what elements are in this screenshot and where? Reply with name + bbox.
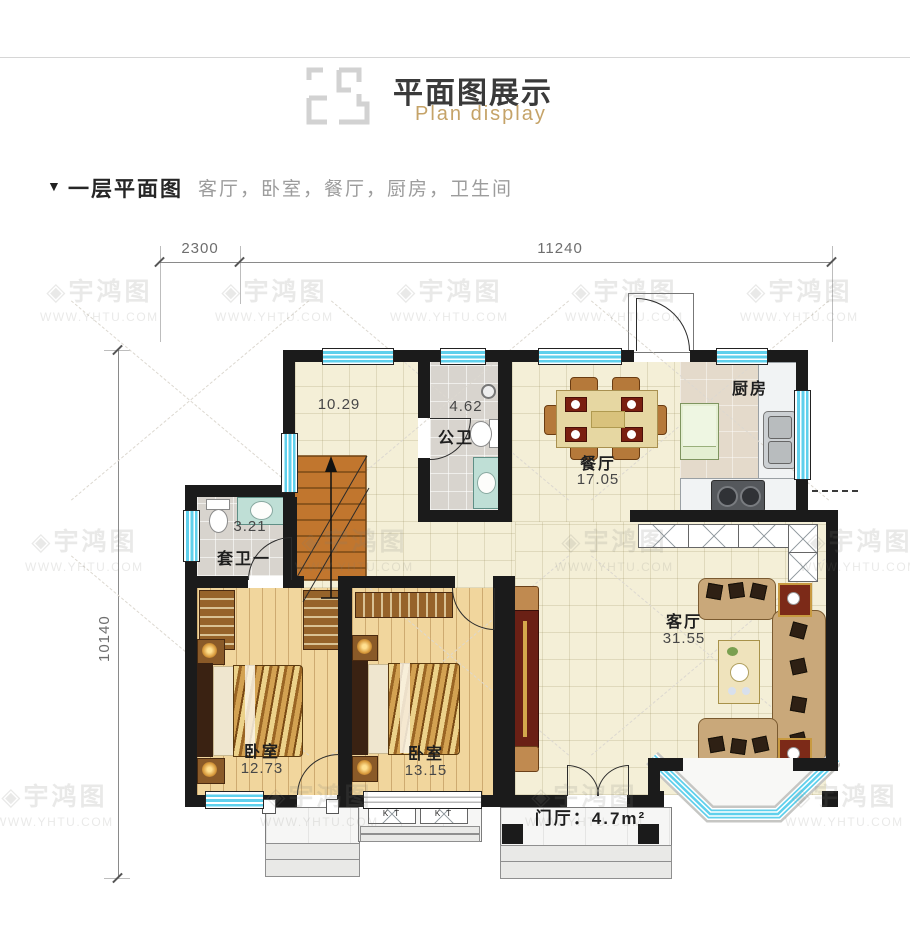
wall (826, 510, 838, 771)
ensuite-label: 套卫一 (204, 545, 284, 569)
ac-platform-edge (360, 826, 480, 834)
speaker (513, 746, 539, 772)
plate (730, 663, 749, 682)
burner (717, 486, 738, 507)
pillow (750, 583, 768, 601)
dimension-top-left: 2300 (160, 240, 240, 257)
nightstand (352, 635, 378, 661)
public-bath-area: 4.62 (438, 398, 494, 415)
wall (655, 758, 683, 771)
porch-post (262, 799, 276, 814)
wall (345, 576, 455, 588)
tv-screen (523, 621, 527, 737)
sink-basin (768, 441, 792, 464)
watermark-url: WWW.YHTU.COM (40, 310, 159, 324)
window (363, 791, 482, 809)
plant (727, 647, 738, 656)
reference-dashes (812, 490, 858, 492)
watermark-logo-icon: ◈ (396, 278, 418, 306)
watermark-brand: ◈宇鸿图 (0, 777, 114, 813)
stove (711, 480, 765, 512)
wall (185, 560, 197, 795)
pillow (790, 658, 808, 676)
side-porch (265, 807, 360, 845)
watermark-logo-icon: ◈ (746, 278, 768, 306)
fridge (680, 403, 719, 460)
watermark: ◈宇鸿图WWW.YHTU.COM (215, 272, 334, 324)
window (440, 348, 486, 365)
porch-step (500, 861, 672, 879)
wall (185, 497, 197, 510)
pillow (728, 582, 745, 599)
speaker (513, 586, 539, 612)
placemat (621, 427, 643, 442)
hall-cabinet (638, 524, 690, 548)
cup (728, 687, 736, 695)
hall-cabinet (688, 524, 740, 548)
wall (185, 576, 248, 588)
hall-cabinet (788, 552, 818, 582)
hall-cabinet (738, 524, 790, 548)
headboard (352, 661, 368, 755)
wall (498, 350, 512, 522)
window (538, 348, 622, 365)
headboard (197, 663, 213, 757)
watermark-url: WWW.YHTU.COM (390, 310, 509, 324)
dimension-line-left (118, 350, 119, 878)
lamp (357, 639, 372, 654)
watermark: ◈宇鸿图WWW.YHTU.COM (40, 272, 159, 324)
bedroom2-area: 13.15 (393, 762, 459, 779)
window (183, 510, 200, 562)
nightstand (197, 758, 225, 784)
wall (493, 576, 515, 795)
kitchen-sink (763, 411, 797, 469)
watermark-brand: ◈宇鸿图 (215, 272, 334, 308)
pillow (789, 621, 807, 639)
watermark-brand: ◈宇鸿图 (740, 272, 859, 308)
bedroom1-area: 12.73 (229, 760, 295, 777)
table-runner (591, 411, 625, 428)
dimension-top-main: 11240 (505, 240, 615, 257)
window (205, 791, 264, 809)
wall (796, 350, 808, 390)
floor-drain (481, 384, 496, 399)
coffee-table (718, 640, 760, 704)
lamp (202, 762, 217, 777)
lamp (202, 643, 217, 658)
watermark-url: WWW.YHTU.COM (0, 815, 114, 829)
ensuite-area: 3.21 (222, 518, 278, 535)
window (322, 348, 394, 365)
watermark-logo-icon: ◈ (46, 278, 68, 306)
wall (337, 795, 363, 807)
floor-plan: 2300 11240 10140 (0, 0, 910, 925)
watermark-logo-icon: ◈ (1, 783, 23, 811)
side-table (778, 583, 812, 617)
stair-hall-area: 10.29 (309, 396, 369, 413)
wall (793, 758, 826, 771)
watermark: ◈宇鸿图WWW.YHTU.COM (0, 777, 114, 829)
wash-basin (477, 472, 496, 494)
wall (283, 350, 295, 435)
watermark: ◈宇鸿图WWW.YHTU.COM (740, 272, 859, 324)
pillow-area (368, 664, 390, 754)
dining-area: 17.05 (566, 471, 630, 488)
window (794, 390, 811, 480)
burner (740, 486, 761, 507)
living-label: 客厅 (654, 608, 714, 632)
fridge-door (683, 406, 716, 447)
dimension-left-side: 10140 (96, 572, 113, 662)
watermark-logo-icon: ◈ (571, 278, 593, 306)
tv-cabinet (513, 610, 539, 748)
watermark-logo-icon: ◈ (31, 528, 53, 556)
window (716, 348, 768, 365)
watermark: ◈宇鸿图WWW.YHTU.COM (390, 272, 509, 324)
placemat (565, 427, 587, 442)
wall (620, 350, 634, 362)
wall (796, 478, 808, 522)
porch-post (326, 799, 339, 814)
pillow (752, 736, 770, 754)
bedroom1-label: 卧室 (232, 738, 292, 762)
foyer-label: 门厅：4.7m² (528, 804, 653, 829)
wall (690, 350, 716, 362)
wall (418, 350, 430, 418)
plan-display-page: 平面图展示 Plan display ▼ 一层平面图 客厅，卧室，餐厅，厨房，卫… (0, 0, 910, 925)
extension-line (240, 246, 241, 304)
hall-cabinet (788, 524, 818, 554)
porch-step (265, 859, 360, 877)
watermark-url: WWW.YHTU.COM (215, 310, 334, 324)
wall (185, 795, 205, 807)
nightstand (352, 756, 378, 782)
wall (290, 576, 304, 588)
watermark-brand: ◈宇鸿图 (40, 272, 159, 308)
floorplan-icon (303, 64, 371, 128)
bay-post (822, 791, 838, 807)
lamp (357, 760, 372, 775)
porch-pillar (502, 824, 523, 844)
pillow (706, 583, 723, 600)
public-bath-label: 公卫 (428, 424, 484, 448)
pillow (708, 736, 725, 753)
bedroom2-label: 卧室 (396, 740, 456, 764)
watermark-url: WWW.YHTU.COM (740, 310, 859, 324)
window (281, 433, 298, 493)
wall (185, 485, 295, 497)
wall (338, 576, 352, 795)
watermark-brand: ◈宇鸿图 (25, 522, 144, 558)
pillow (790, 696, 807, 713)
ac-platform-edge (360, 834, 480, 842)
sink-basin (768, 416, 792, 439)
wall (392, 350, 440, 362)
watermark-brand: ◈宇鸿图 (390, 272, 509, 308)
nightstand (197, 639, 225, 665)
living-area: 31.55 (652, 630, 716, 647)
cup (742, 687, 750, 695)
dining-table (556, 390, 658, 448)
kitchen-label: 厨房 (720, 375, 780, 399)
dimension-line-top (160, 262, 832, 263)
placemat (621, 397, 643, 412)
placemat (565, 397, 587, 412)
